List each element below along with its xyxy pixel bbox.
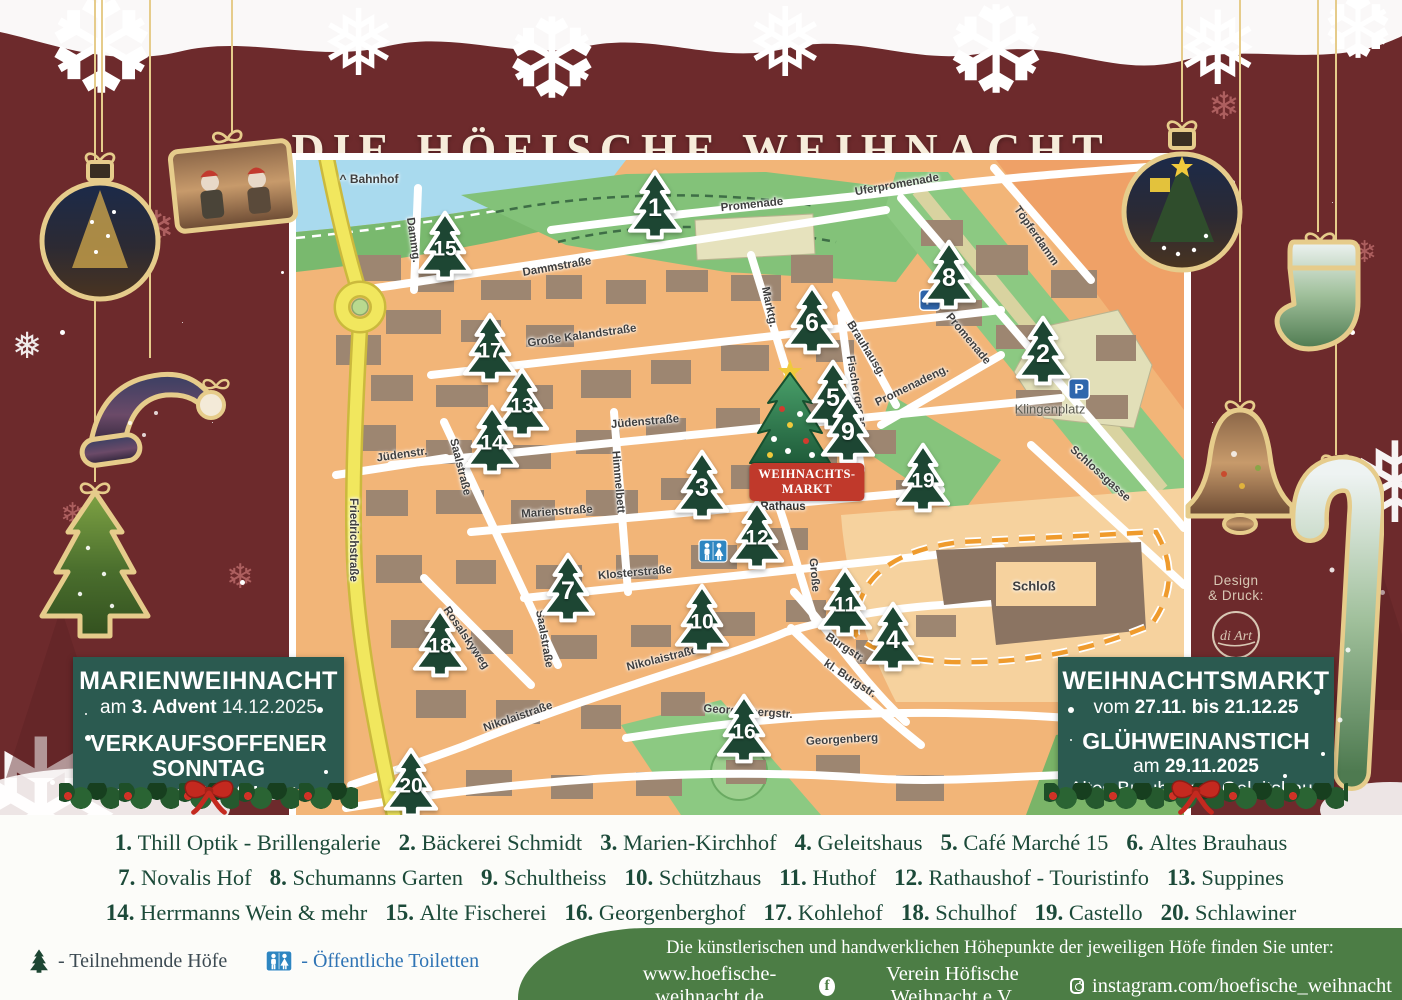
map-marker-7: 7	[537, 552, 599, 624]
snowflake-icon: ❆	[1322, 0, 1394, 72]
map-marker-15: 15	[414, 210, 476, 282]
ornament-santa-hat-photo	[70, 353, 230, 471]
schloss-label: Schloß	[1012, 579, 1055, 594]
box-title: WEIHNACHTSMARKT	[1058, 667, 1334, 696]
garland-decoration	[1044, 783, 1348, 809]
klingenplatz-label: Klingenplatz	[1015, 402, 1086, 417]
legend-rows: 1. Thill Optik - Brillengalerie2. Bäcker…	[0, 815, 1402, 932]
facebook-icon: f	[819, 977, 835, 996]
legend-entry: 3. Marien-Kirchhof	[600, 830, 777, 855]
designer-logo: di Art	[1210, 609, 1262, 661]
legend-entry: 16. Georgenberghof	[564, 900, 745, 925]
legend-entry: 13. Suppines	[1167, 865, 1284, 890]
legend-entry: 7. Novalis Hof	[118, 865, 252, 890]
map-marker-16: 16	[713, 693, 775, 765]
legend-entry: 8. Schumanns Garten	[270, 865, 463, 890]
ornament-bauble-photo-left	[30, 148, 170, 313]
snowflake-icon: ❅	[1175, 0, 1260, 100]
red-bow-icon	[1167, 771, 1225, 815]
legend-entry: 5. Café Marché 15	[941, 830, 1109, 855]
map-marker-10: 10	[671, 583, 733, 655]
legend-entry: 17. Kohlehof	[763, 900, 882, 925]
map-marker-20: 20	[380, 747, 442, 819]
facebook-name: Verein Höfische Weihnacht e.V.	[843, 963, 1062, 1000]
snowflake-icon: ❅	[12, 328, 42, 364]
legend-entry: 18. Schulhof	[901, 900, 1017, 925]
weihnachtsmarkt-box: WEIHNACHTSMARKT vom 27.11. bis 21.12.25 …	[1058, 657, 1334, 789]
participating-courts-key: - Teilnehmende Höfe	[28, 948, 227, 974]
map-marker-11: 11	[814, 566, 876, 638]
ornament-bell-photo	[1178, 396, 1302, 548]
ornament-tree-photo	[20, 478, 170, 660]
legend-entry: 2. Bäckerei Schmidt	[399, 830, 582, 855]
map-marker-18: 18	[409, 607, 471, 679]
snowflake-icon: ❅	[745, 0, 825, 92]
map-marker-19: 19	[892, 442, 954, 514]
snowflake-icon: ❄	[226, 560, 255, 594]
legend-entry: 15. Alte Fischerei	[385, 900, 546, 925]
legend-entry: 11. Huthof	[779, 865, 876, 890]
ornament-string	[231, 0, 233, 132]
legend-row: 14. Herrmanns Wein & mehr15. Alte Fische…	[0, 897, 1402, 932]
box-date: vom 27.11. bis 21.12.25	[1058, 697, 1334, 719]
map-marker-8: 8	[918, 239, 980, 311]
red-bow-icon	[180, 771, 238, 815]
map-marker-6: 6	[781, 284, 843, 356]
fir-tree-icon	[28, 948, 50, 974]
map-marker-1: 1	[624, 169, 686, 241]
ornament-gift-photo	[160, 119, 306, 243]
design-credit: Design & Druck: di Art	[1188, 573, 1284, 666]
legend-entry: 9. Schultheiss	[481, 865, 606, 890]
legend-entry: 6. Altes Brauhaus	[1126, 830, 1287, 855]
key-label: - Teilnehmende Höfe	[58, 950, 227, 973]
legend-entry: 1. Thill Optik - Brillengalerie	[115, 830, 381, 855]
footer-links: www.hoefische-weihnacht.de f Verein Höfi…	[608, 963, 1392, 1000]
map-marker-14: 14	[461, 404, 523, 476]
box-title: MARIENWEIHNACHT	[73, 667, 344, 696]
ornament-bauble-photo-right	[1112, 116, 1252, 284]
ornament-stocking-photo	[1262, 228, 1374, 370]
website-link: www.hoefische-weihnacht.de	[608, 963, 811, 1000]
marienweihnacht-box: MARIENWEIHNACHT am 3. Advent 14.12.2025 …	[73, 657, 344, 789]
footer-info: Die künstlerischen und handwerklichen Hö…	[518, 928, 1402, 1000]
map-marker-3: 3	[671, 449, 733, 521]
ornament-string	[1317, 0, 1319, 232]
legend-entry: 20. Schlawiner	[1161, 900, 1297, 925]
instagram-link: instagram.com/hoefische_weihnacht	[1092, 975, 1392, 998]
street-label: Friedrichstraße	[347, 498, 359, 582]
bahnhof-label: ^ Bahnhof	[340, 172, 399, 186]
snowflake-icon: ❆	[505, 4, 599, 116]
map-marker-9: 9	[817, 393, 879, 465]
legend-entry: 12. Rathaushof - Touristinfo	[894, 865, 1149, 890]
key-label: - Öffentliche Toiletten	[301, 950, 479, 973]
public-toilet-icon	[265, 950, 293, 972]
map-marker-2: 2	[1012, 315, 1074, 387]
footer-message: Die künstlerischen und handwerklichen Hö…	[608, 938, 1392, 959]
garland-decoration	[59, 783, 358, 809]
map-marker-12: 12	[726, 499, 788, 571]
legend-entry: 14. Herrmanns Wein & mehr	[106, 900, 367, 925]
legend-row: 7. Novalis Hof8. Schumanns Garten9. Schu…	[0, 862, 1402, 897]
map-marker-17: 17	[459, 312, 521, 384]
legend-entry: 4. Geleitshaus	[795, 830, 923, 855]
city-map: Dammg.DammstraßePromenadeUferpromenadeTö…	[289, 153, 1191, 822]
instagram-icon	[1070, 978, 1084, 994]
legend-entry: 19. Castello	[1034, 900, 1142, 925]
snowflake-icon: ❅	[320, 0, 397, 90]
legend-row: 1. Thill Optik - Brillengalerie2. Bäcker…	[0, 827, 1402, 862]
box-subtitle: GLÜHWEINANSTICH	[1058, 729, 1334, 754]
ornament-string	[1181, 0, 1183, 122]
map-key: - Teilnehmende Höfe - Öffentliche Toilet…	[28, 948, 505, 974]
public-toilets-key: - Öffentliche Toiletten	[265, 950, 479, 973]
legend-entry: 10. Schützhaus	[624, 865, 761, 890]
snowflake-icon: ❆	[945, 0, 1047, 112]
svg-text:di Art: di Art	[1220, 629, 1253, 644]
public-toilet-icon	[698, 539, 728, 563]
weihnachtsmarkt-label: WEIHNACHTS- MARKT	[749, 463, 864, 501]
christmas-market-poster: ❆ ❅ ❆ ❅ ❆ ❅ ❆ ❄ ❄ ❄ ❄ ❄ ❅ ❅ ❅ ❆ DIE HÖFI…	[0, 0, 1402, 1000]
box-date: am 3. Advent 14.12.2025	[73, 697, 344, 719]
